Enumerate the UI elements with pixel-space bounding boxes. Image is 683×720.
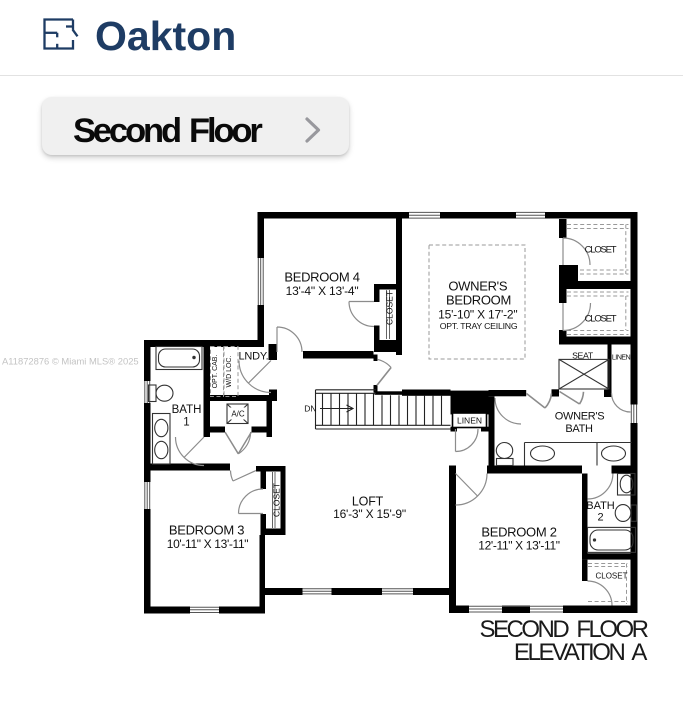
- svg-text:BEDROOM: BEDROOM: [446, 293, 511, 308]
- svg-text:CLOSET: CLOSET: [595, 572, 627, 581]
- svg-text:ELEVATION A: ELEVATION A: [514, 639, 647, 666]
- svg-text:BEDROOM 4: BEDROOM 4: [284, 270, 359, 285]
- svg-text:A11872876 © Miami MLS® 2025: A11872876 © Miami MLS® 2025: [2, 355, 139, 366]
- svg-text:1: 1: [183, 417, 189, 429]
- svg-text:SEAT: SEAT: [572, 351, 594, 361]
- svg-text:BATH: BATH: [586, 500, 615, 512]
- svg-text:16'-3" X 15'-9": 16'-3" X 15'-9": [333, 507, 406, 521]
- svg-text:OWNER'S: OWNER'S: [555, 411, 605, 423]
- svg-text:13'-4" X 13'-4": 13'-4" X 13'-4": [286, 284, 359, 298]
- svg-text:CLOSET: CLOSET: [272, 483, 282, 517]
- svg-text:BEDROOM 2: BEDROOM 2: [481, 525, 556, 540]
- svg-text:BATH: BATH: [565, 423, 593, 435]
- svg-text:12'-11" X 13'-11": 12'-11" X 13'-11": [478, 539, 560, 553]
- svg-text:OWNER'S: OWNER'S: [448, 279, 508, 294]
- svg-text:CLOSET: CLOSET: [585, 245, 617, 256]
- svg-text:CLOSET: CLOSET: [385, 291, 395, 325]
- svg-text:OPT. CAB.: OPT. CAB.: [212, 355, 219, 389]
- svg-text:DN: DN: [304, 404, 316, 414]
- svg-text:2: 2: [597, 512, 603, 524]
- svg-text:BEDROOM 3: BEDROOM 3: [169, 523, 244, 538]
- svg-text:W/D LOC.: W/D LOC.: [226, 356, 233, 388]
- svg-text:15'-10" X 17'-2": 15'-10" X 17'-2": [438, 308, 517, 322]
- svg-text:LNDY.: LNDY.: [239, 351, 269, 363]
- svg-text:CLOSET: CLOSET: [585, 314, 617, 325]
- svg-text:LINEN: LINEN: [457, 416, 482, 426]
- svg-text:BATH: BATH: [172, 404, 202, 416]
- svg-text:LINEN: LINEN: [612, 353, 631, 362]
- svg-text:OPT. TRAY CEILING: OPT. TRAY CEILING: [440, 321, 518, 331]
- svg-text:10'-11" X 13'-11": 10'-11" X 13'-11": [167, 537, 249, 551]
- svg-text:A/C: A/C: [231, 410, 245, 419]
